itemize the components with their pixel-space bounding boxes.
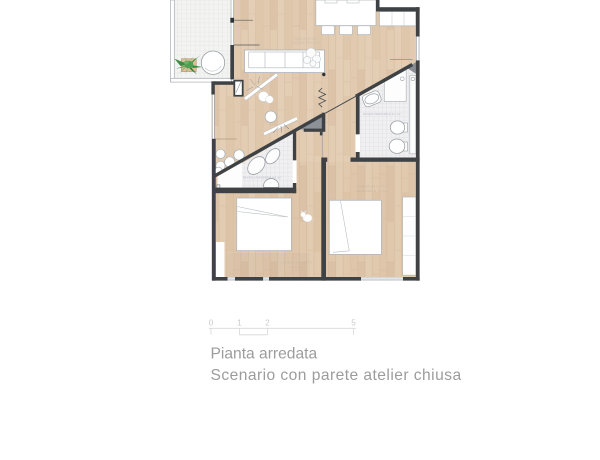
svg-text:1: 1	[237, 319, 242, 328]
svg-text:BAGNO LAVANDERIA 4.9 m2: BAGNO LAVANDERIA 4.9 m2	[243, 176, 281, 179]
svg-text:CUCINA PRANZO: CUCINA PRANZO	[291, 41, 321, 45]
svg-text:2: 2	[265, 319, 270, 328]
svg-text:0: 0	[209, 319, 214, 328]
svg-text:Pianta arredata: Pianta arredata	[211, 346, 318, 363]
svg-text:12.4 m2: 12.4 m2	[290, 265, 303, 269]
svg-text:BAGNO PRINCIPALE 5.2 m2: BAGNO PRINCIPALE 5.2 m2	[363, 113, 401, 116]
svg-text:PRINCIPALE 16 m2: PRINCIPALE 16 m2	[356, 189, 387, 193]
svg-text:Scenario con parete atelier ch: Scenario con parete atelier chiusa	[211, 367, 462, 384]
svg-text:5: 5	[351, 319, 356, 328]
